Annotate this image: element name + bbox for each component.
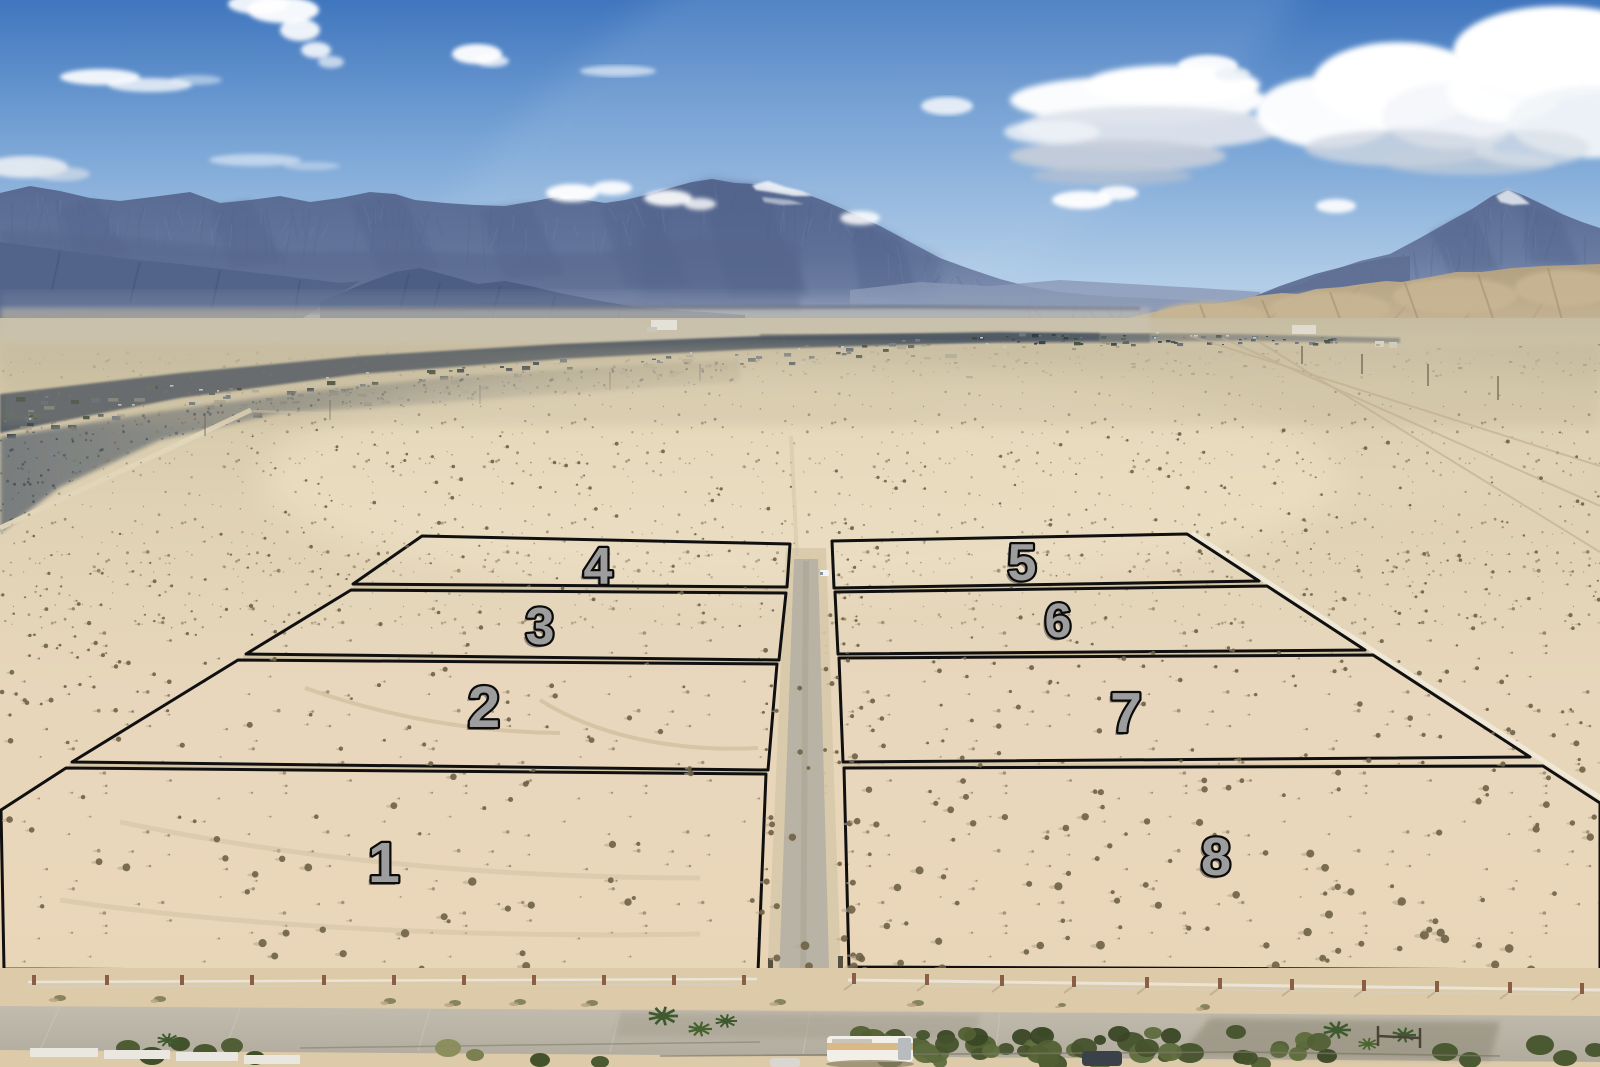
svg-text:4: 4	[584, 538, 613, 596]
svg-text:1: 1	[368, 831, 400, 895]
svg-text:8: 8	[1201, 827, 1231, 887]
svg-text:7: 7	[1110, 681, 1142, 745]
svg-text:5: 5	[1008, 534, 1037, 592]
svg-text:2: 2	[468, 675, 500, 740]
svg-text:6: 6	[1045, 595, 1072, 648]
svg-text:3: 3	[526, 598, 555, 656]
